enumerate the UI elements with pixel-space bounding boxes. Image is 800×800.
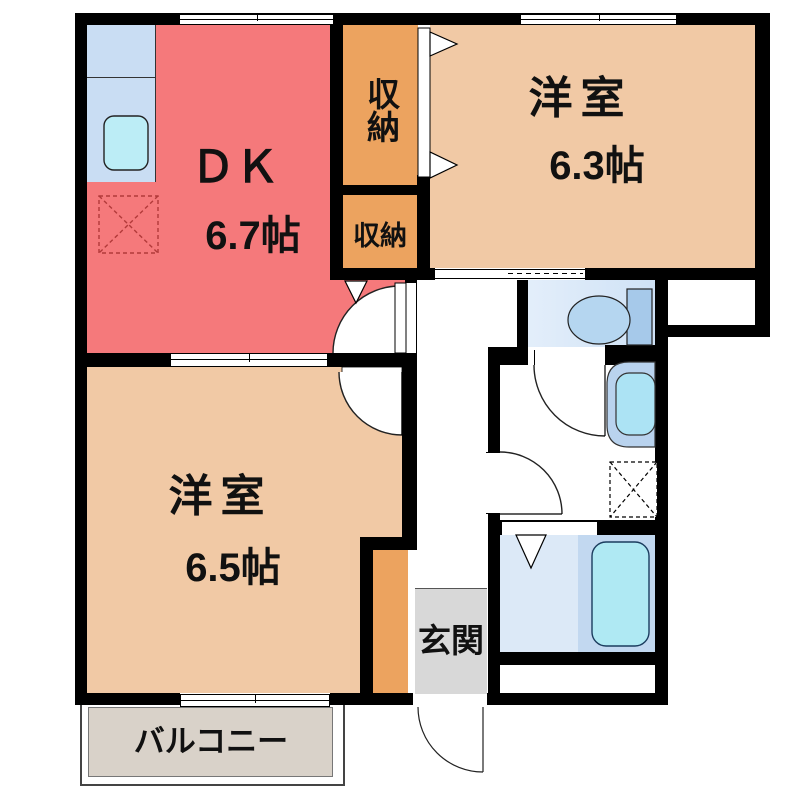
room-area-dk: 6.7帖 — [158, 210, 348, 262]
closet-top-label: 収納 — [360, 55, 402, 165]
entrance-door[interactable] — [418, 707, 483, 772]
toilet-icon — [568, 289, 652, 345]
room-label-dk: ＤＫ — [160, 142, 310, 194]
bathtub-icon — [592, 542, 649, 646]
bedroom-right-doorway[interactable] — [435, 269, 585, 279]
refrigerator-space-icon — [99, 196, 158, 253]
bedroom-left-door[interactable] — [339, 367, 402, 435]
closet-door-triangle-icon — [430, 152, 457, 178]
floor-plan: ＤＫ 6.7帖 洋室 6.3帖 洋室 6.5帖 収納 収納 玄関 バルコニー — [0, 0, 800, 800]
closet-door-triangle-icon — [430, 32, 457, 56]
washroom-door[interactable] — [534, 350, 605, 436]
room-area-bedroom-left: 6.5帖 — [138, 542, 328, 594]
room-label-bedroom-right: 洋室 — [498, 74, 663, 124]
washing-machine-space-icon — [610, 462, 657, 517]
hallway-washroom-door[interactable] — [486, 452, 562, 514]
bathroom-door[interactable] — [502, 522, 597, 568]
kitchen-sink-icon — [104, 116, 148, 170]
entrance-label: 玄関 — [413, 621, 489, 659]
dk-door[interactable] — [333, 281, 417, 353]
closet-bottom-label: 収納 — [344, 220, 416, 252]
room-label-bedroom-left: 洋室 — [138, 472, 303, 522]
balcony-label: バルコニー — [112, 720, 310, 762]
closet-door-strip[interactable] — [418, 28, 430, 177]
room-area-bedroom-right: 6.3帖 — [502, 140, 692, 192]
washbasin-icon — [607, 362, 655, 447]
